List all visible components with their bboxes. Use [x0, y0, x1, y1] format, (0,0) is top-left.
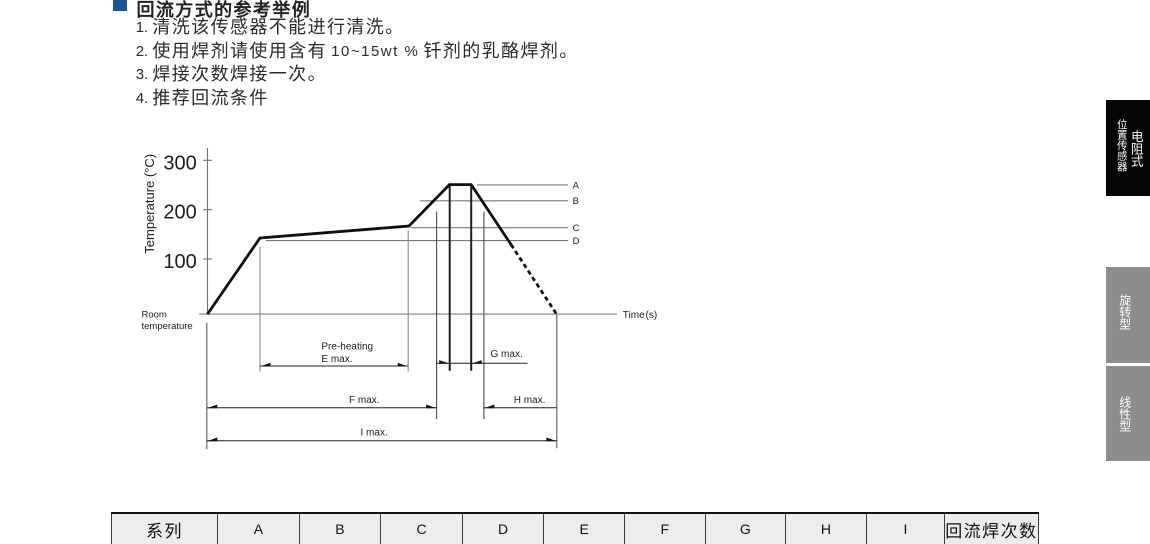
svg-text:D: D: [573, 236, 580, 247]
svg-text:F max.: F max.: [349, 395, 380, 406]
svg-text:B: B: [573, 196, 579, 207]
svg-text:A: A: [573, 180, 580, 191]
svg-text:temperature: temperature: [142, 321, 193, 332]
svg-text:C: C: [573, 223, 580, 234]
svg-text:Temperature (°C): Temperature (°C): [142, 154, 157, 254]
svg-text:Pre-heating: Pre-heating: [321, 342, 373, 353]
svg-text:100: 100: [163, 251, 196, 273]
svg-text:300: 300: [163, 152, 196, 174]
svg-text:E max.: E max.: [321, 354, 352, 365]
svg-text:200: 200: [163, 202, 196, 224]
svg-text:H max.: H max.: [514, 395, 546, 406]
svg-text:G max.: G max.: [491, 349, 523, 360]
svg-text:I max.: I max.: [361, 427, 388, 438]
svg-text:Room: Room: [142, 310, 167, 321]
svg-text:Time (s): Time (s): [623, 310, 657, 321]
